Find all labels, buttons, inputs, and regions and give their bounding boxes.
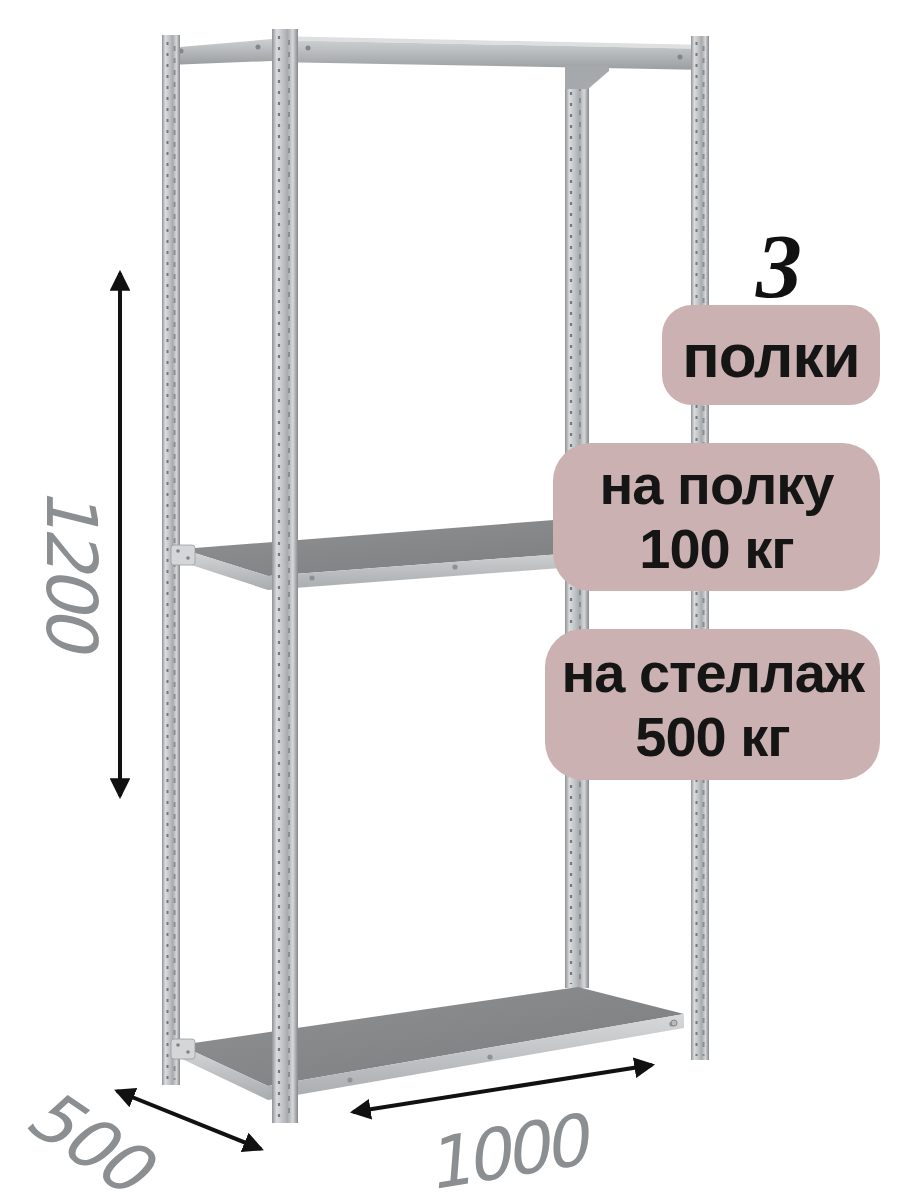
shelf-count-badge: полки	[662, 305, 880, 405]
per-shelf-load-badge: на полку 100 кг	[553, 443, 880, 591]
bottom-shelf	[180, 987, 684, 1100]
post-back-left	[162, 35, 195, 1085]
shelf-count-label: полки	[682, 320, 859, 391]
post-front-left	[272, 29, 298, 1123]
top-beams	[168, 36, 709, 89]
product-image: 1200 500 1000 3 полки на полку 100 кг на…	[0, 0, 900, 1200]
rack-illustration	[0, 0, 900, 1200]
per-rack-load-line1: на стеллаж	[561, 641, 863, 705]
height-dimension-label: 1200	[32, 456, 112, 676]
shelf-count-number: 3	[714, 216, 844, 316]
per-shelf-load-line2: 100 кг	[639, 517, 793, 581]
per-rack-load-badge: на стеллаж 500 кг	[545, 629, 880, 780]
per-shelf-load-line1: на полку	[600, 453, 834, 517]
per-rack-load-line2: 500 кг	[635, 705, 789, 769]
